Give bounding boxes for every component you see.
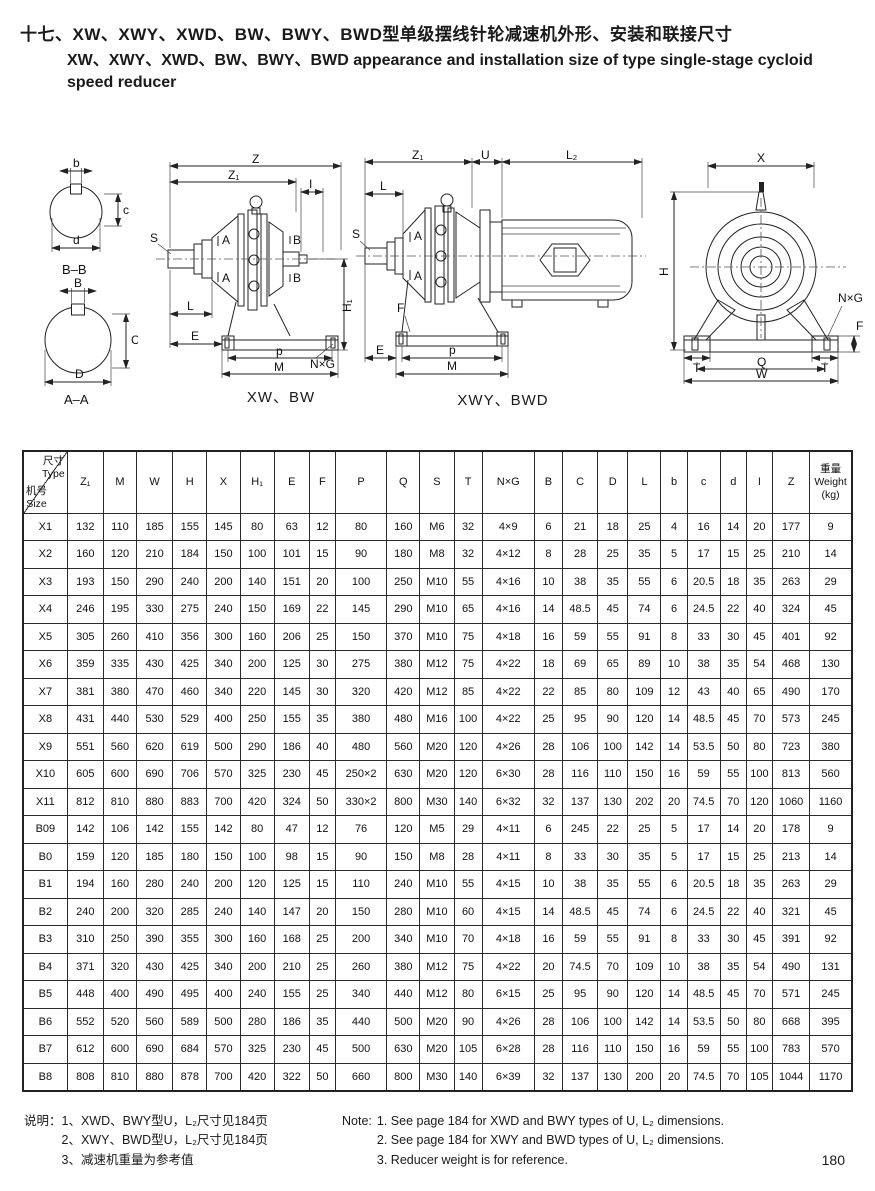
cell: 178 — [772, 816, 809, 844]
cell: 12 — [309, 816, 335, 844]
cell: 6 — [661, 898, 687, 926]
cell: 120 — [454, 733, 482, 761]
cell: 150 — [240, 596, 274, 624]
cell: M10 — [420, 871, 454, 899]
cell: 180 — [387, 541, 420, 569]
cell: 480 — [335, 733, 386, 761]
cell: 195 — [103, 596, 136, 624]
row-size-label: X7 — [23, 678, 67, 706]
table-row: B880881088087870042032250660800M301406×3… — [23, 1063, 852, 1091]
cell: 210 — [772, 541, 809, 569]
row-size-label: B2 — [23, 898, 67, 926]
column-header: H — [173, 451, 207, 513]
cell: 185 — [137, 513, 173, 541]
cell: 4×22 — [482, 678, 534, 706]
cell: 10 — [534, 871, 562, 899]
cell: 878 — [173, 1063, 207, 1091]
cell: 54 — [746, 651, 772, 679]
dim-label: D — [75, 367, 84, 381]
cell: 324 — [772, 596, 809, 624]
cell: 55 — [720, 1036, 746, 1064]
cell: 420 — [387, 678, 420, 706]
cell: 18 — [720, 568, 746, 596]
cell: 275 — [335, 651, 386, 679]
cell: 55 — [454, 871, 482, 899]
table-row: B437132043042534020021025260380M12754×22… — [23, 953, 852, 981]
cell: 240 — [387, 871, 420, 899]
cell: 6×28 — [482, 1036, 534, 1064]
table-header: 尺寸Type 机号Size Z₁MWHXH₁EFPQSTN×GBCDLbcdIZ… — [23, 451, 852, 513]
dim-label: B — [74, 276, 82, 290]
cell: 75 — [454, 651, 482, 679]
cell: 15 — [309, 871, 335, 899]
cell: 45 — [309, 761, 335, 789]
cell: 150 — [628, 761, 661, 789]
cell: 95 — [563, 706, 598, 734]
cell: 20 — [534, 953, 562, 981]
cell: 495 — [173, 981, 207, 1009]
cell: M12 — [420, 981, 454, 1009]
cell: 45 — [598, 898, 628, 926]
cell: 38 — [687, 651, 720, 679]
cell: 80 — [240, 816, 274, 844]
cell: 160 — [387, 513, 420, 541]
cell: 560 — [103, 733, 136, 761]
cell: 20 — [309, 568, 335, 596]
cell: 40 — [746, 596, 772, 624]
cell: 130 — [598, 1063, 628, 1091]
cell: 150 — [335, 623, 386, 651]
cell: 24.5 — [687, 596, 720, 624]
cell: 263 — [772, 871, 809, 899]
cell: 28 — [534, 1008, 562, 1036]
cell: 6 — [661, 568, 687, 596]
dim-label: Z₁ — [228, 168, 239, 182]
table-row: B0914210614215514280471276120M5294×11624… — [23, 816, 852, 844]
cell: M20 — [420, 733, 454, 761]
table-row: X843144053052940025015535380480M161004×2… — [23, 706, 852, 734]
corner-type: 尺寸Type — [42, 455, 65, 480]
cell: 500 — [335, 1036, 386, 1064]
dim-label: Z₁ — [412, 148, 423, 162]
cell: 723 — [772, 733, 809, 761]
cell: 8 — [661, 623, 687, 651]
notes-chinese: 说明： 1、XWD、BWY型U，L₂尺寸见184页 2、XWY、BWD型U，L₂… — [24, 1112, 342, 1170]
cell: 45 — [746, 623, 772, 651]
dim-label: S — [352, 227, 360, 241]
cell: 116 — [563, 1036, 598, 1064]
cell: 43 — [687, 678, 720, 706]
cell: 668 — [772, 1008, 809, 1036]
cell: 240 — [207, 596, 240, 624]
note-line: 1. See page 184 for XWD and BWY types of… — [377, 1112, 724, 1131]
cell: 4×15 — [482, 871, 534, 899]
cell: 25 — [309, 926, 335, 954]
cell: 6×15 — [482, 981, 534, 1009]
cell: 260 — [103, 623, 136, 651]
cell: 140 — [240, 898, 274, 926]
cell: M5 — [420, 816, 454, 844]
dim-label: I — [309, 177, 312, 191]
cell: 1170 — [810, 1063, 852, 1091]
cell: 160 — [67, 541, 103, 569]
cell: 151 — [274, 568, 309, 596]
cell: 25 — [534, 706, 562, 734]
cell: 140 — [454, 1063, 482, 1091]
dim-label: M — [274, 360, 284, 374]
cell: 194 — [67, 871, 103, 899]
cell: 6×30 — [482, 761, 534, 789]
cell: 20 — [309, 898, 335, 926]
cell: 356 — [173, 623, 207, 651]
cell: 400 — [207, 981, 240, 1009]
column-header: W — [137, 451, 173, 513]
cell: 200 — [335, 926, 386, 954]
cell: 250 — [240, 706, 274, 734]
page-title-en: XW、XWY、XWD、BW、BWY、BWD appearance and ins… — [67, 50, 860, 72]
cell: 22 — [720, 898, 746, 926]
row-size-label: B09 — [23, 816, 67, 844]
cell: 45 — [598, 596, 628, 624]
cell: 4×26 — [482, 1008, 534, 1036]
section-mark: A — [222, 233, 230, 247]
cell: 15 — [309, 843, 335, 871]
cell: 320 — [335, 678, 386, 706]
cell: 155 — [173, 513, 207, 541]
cell: 14 — [810, 541, 852, 569]
cell: M10 — [420, 568, 454, 596]
cell: 48.5 — [563, 898, 598, 926]
cell: 4×12 — [482, 541, 534, 569]
cell: 54 — [746, 953, 772, 981]
dim-label: F — [397, 301, 404, 315]
cell: 4×11 — [482, 843, 534, 871]
cell: 25 — [309, 623, 335, 651]
cell: 370 — [387, 623, 420, 651]
cell: 91 — [628, 623, 661, 651]
row-size-label: X10 — [23, 761, 67, 789]
cell: 38 — [563, 568, 598, 596]
cell: 245 — [563, 816, 598, 844]
cell: 25 — [628, 513, 661, 541]
table-body: X113211018515514580631280160M6324×962118… — [23, 513, 852, 1091]
cell: 200 — [207, 871, 240, 899]
cell: 200 — [240, 651, 274, 679]
cell: 17 — [687, 843, 720, 871]
cell: 5 — [661, 541, 687, 569]
cell: 22 — [534, 678, 562, 706]
cell: 22 — [309, 596, 335, 624]
cell: M20 — [420, 1008, 454, 1036]
cell: 132 — [67, 513, 103, 541]
cell: 470 — [137, 678, 173, 706]
cell: 30 — [309, 651, 335, 679]
cell: 109 — [628, 678, 661, 706]
cell: 186 — [274, 733, 309, 761]
cell: 25 — [598, 541, 628, 569]
section-mark: A — [414, 229, 422, 243]
cell: 80 — [746, 733, 772, 761]
cell: 22 — [598, 816, 628, 844]
cell: 16 — [661, 761, 687, 789]
cell: 425 — [173, 651, 207, 679]
cell: 4×22 — [482, 953, 534, 981]
cell: 150 — [628, 1036, 661, 1064]
cell: 600 — [103, 1036, 136, 1064]
cell: 45 — [746, 926, 772, 954]
cell: 800 — [387, 788, 420, 816]
cell: 65 — [454, 596, 482, 624]
cell: 120 — [103, 843, 136, 871]
cell: 70 — [454, 926, 482, 954]
dim-label: Z — [252, 152, 259, 166]
cell: 70 — [598, 953, 628, 981]
cell: 430 — [137, 953, 173, 981]
catalog-page: 十七、XW、XWY、XWD、BW、BWY、BWD型单级摆线针轮减速机外形、安装和… — [0, 0, 875, 1191]
dim-label: d — [73, 233, 80, 247]
cell: M12 — [420, 651, 454, 679]
cell: 106 — [563, 1008, 598, 1036]
cell: M12 — [420, 953, 454, 981]
cell: 131 — [810, 953, 852, 981]
cell: M30 — [420, 788, 454, 816]
cell: 480 — [387, 706, 420, 734]
cell: 155 — [173, 816, 207, 844]
column-header: M — [103, 451, 136, 513]
cell: 230 — [274, 761, 309, 789]
cell: 12 — [661, 678, 687, 706]
cell: 260 — [335, 953, 386, 981]
cell: 125 — [274, 871, 309, 899]
cell: 100 — [598, 733, 628, 761]
cell: 8 — [534, 541, 562, 569]
cell: 137 — [563, 788, 598, 816]
cell: 5 — [661, 843, 687, 871]
column-header: P — [335, 451, 386, 513]
cell: 700 — [207, 1063, 240, 1091]
cell: 18 — [598, 513, 628, 541]
table-row: B119416028024020012012515110240M10554×15… — [23, 871, 852, 899]
cell: 186 — [274, 1008, 309, 1036]
cell: 310 — [67, 926, 103, 954]
row-size-label: B0 — [23, 843, 67, 871]
table-row: B331025039035530016016825200340M10704×18… — [23, 926, 852, 954]
cell: 18 — [720, 871, 746, 899]
cell: 116 — [563, 761, 598, 789]
section-mark: B — [293, 233, 301, 247]
cell: 55 — [628, 568, 661, 596]
column-header: Z₁ — [67, 451, 103, 513]
cell: 59 — [687, 761, 720, 789]
row-size-label: X4 — [23, 596, 67, 624]
cell: 74.5 — [563, 953, 598, 981]
cell: 810 — [103, 788, 136, 816]
cell: 490 — [772, 953, 809, 981]
cell: 468 — [772, 651, 809, 679]
cell: 1044 — [772, 1063, 809, 1091]
cell: 335 — [103, 651, 136, 679]
cell: M16 — [420, 706, 454, 734]
cell: 240 — [240, 981, 274, 1009]
cell: 32 — [534, 788, 562, 816]
cell: 92 — [810, 926, 852, 954]
cell: 50 — [309, 788, 335, 816]
cell: 324 — [274, 788, 309, 816]
cell: 16 — [661, 1036, 687, 1064]
cell: 1060 — [772, 788, 809, 816]
cell: 620 — [137, 733, 173, 761]
cell: 275 — [173, 596, 207, 624]
cell: 92 — [810, 623, 852, 651]
cell: 80 — [746, 1008, 772, 1036]
column-header: I — [746, 451, 772, 513]
cell: M8 — [420, 541, 454, 569]
cell: 5 — [661, 816, 687, 844]
cell: 660 — [335, 1063, 386, 1091]
cell: 4×16 — [482, 596, 534, 624]
cell: 32 — [534, 1063, 562, 1091]
corner-header: 尺寸Type 机号Size — [23, 451, 67, 513]
cell: 35 — [598, 871, 628, 899]
cell: 69 — [563, 651, 598, 679]
dim-label: p — [276, 344, 283, 358]
cell: 14 — [810, 843, 852, 871]
cell: 60 — [454, 898, 482, 926]
cell: 50 — [720, 733, 746, 761]
cell: 50 — [309, 1063, 335, 1091]
column-header: b — [661, 451, 687, 513]
title-block: 十七、XW、XWY、XWD、BW、BWY、BWD型单级摆线针轮减速机外形、安装和… — [20, 24, 860, 93]
cell: 185 — [137, 843, 173, 871]
cell: 28 — [534, 1036, 562, 1064]
cell: 440 — [387, 981, 420, 1009]
cell: 4×9 — [482, 513, 534, 541]
cell: 35 — [309, 1008, 335, 1036]
cell: 22 — [720, 596, 746, 624]
shaft-section-views: b c d B–B B C D A–A — [26, 156, 138, 406]
column-header: Z — [772, 451, 809, 513]
table-row: X319315029024020014015120100250M10554×16… — [23, 568, 852, 596]
column-header: N×G — [482, 451, 534, 513]
cell: 35 — [746, 871, 772, 899]
technical-drawings: b c d B–B B C D A–A — [0, 146, 875, 448]
cell: 33 — [687, 623, 720, 651]
cell: 200 — [628, 1063, 661, 1091]
cell: 74 — [628, 596, 661, 624]
cell: 48.5 — [563, 596, 598, 624]
dim-label: L — [380, 179, 387, 193]
cell: 340 — [387, 926, 420, 954]
cell: 808 — [67, 1063, 103, 1091]
page-title-en2: speed reducer — [67, 72, 860, 94]
cell: 530 — [137, 706, 173, 734]
note-line: 2、XWY、BWD型U，L₂尺寸见184页 — [62, 1131, 268, 1150]
cell: 142 — [628, 1008, 661, 1036]
cell: 14 — [720, 513, 746, 541]
cell: 160 — [240, 623, 274, 651]
cell: 355 — [173, 926, 207, 954]
row-size-label: B8 — [23, 1063, 67, 1091]
dim-label: L — [187, 299, 194, 313]
cell: 125 — [274, 651, 309, 679]
cell: 202 — [628, 788, 661, 816]
column-header: T — [454, 451, 482, 513]
corner-size: 机号Size — [26, 485, 47, 510]
cell: 193 — [67, 568, 103, 596]
cell: 130 — [810, 651, 852, 679]
dim-label: N×G — [838, 291, 863, 305]
cell: M20 — [420, 761, 454, 789]
row-size-label: B3 — [23, 926, 67, 954]
cell: 30 — [598, 843, 628, 871]
cell: 38 — [687, 953, 720, 981]
cell: 213 — [772, 843, 809, 871]
table-row: X1060560069070657032523045250×2630M20120… — [23, 761, 852, 789]
cell: 250 — [103, 926, 136, 954]
column-header: D — [598, 451, 628, 513]
row-size-label: X5 — [23, 623, 67, 651]
cell: 20.5 — [687, 871, 720, 899]
cell: 74 — [628, 898, 661, 926]
cell: 570 — [810, 1036, 852, 1064]
cell: M10 — [420, 596, 454, 624]
caption-xwy-bwd: XWY、BWD — [398, 389, 608, 410]
cell: 380 — [335, 706, 386, 734]
cell: 15 — [720, 843, 746, 871]
cell: 20 — [746, 513, 772, 541]
column-header: X — [207, 451, 240, 513]
cell: 17 — [687, 541, 720, 569]
cell: 380 — [387, 651, 420, 679]
cell: 4×11 — [482, 816, 534, 844]
cell: 55 — [598, 623, 628, 651]
column-header: L — [628, 451, 661, 513]
cell: 570 — [207, 761, 240, 789]
cell: 80 — [598, 678, 628, 706]
notes-en-label: Note: — [342, 1112, 372, 1170]
xw-bw-drawing: Z Z₁ I A A B B — [138, 152, 353, 394]
dim-label: M — [447, 359, 457, 373]
cell: 400 — [207, 706, 240, 734]
cell: 95 — [563, 981, 598, 1009]
row-size-label: B4 — [23, 953, 67, 981]
cell: 210 — [137, 541, 173, 569]
cell: 137 — [563, 1063, 598, 1091]
table-row: X635933543042534020012530275380M12754×22… — [23, 651, 852, 679]
cell: 290 — [387, 596, 420, 624]
cell: 30 — [309, 678, 335, 706]
cell: 65 — [746, 678, 772, 706]
cell: 110 — [598, 761, 628, 789]
cell: 80 — [240, 513, 274, 541]
cell: 490 — [772, 678, 809, 706]
cell: 180 — [173, 843, 207, 871]
table-row: X530526041035630016020625150370M10754×18… — [23, 623, 852, 651]
row-size-label: X3 — [23, 568, 67, 596]
cell: 14 — [720, 816, 746, 844]
cell: 245 — [810, 706, 852, 734]
cell: 28 — [563, 541, 598, 569]
cell: 431 — [67, 706, 103, 734]
cell: 155 — [274, 981, 309, 1009]
cell: 420 — [240, 1063, 274, 1091]
cell: 65 — [598, 651, 628, 679]
cell: 600 — [103, 761, 136, 789]
cell: 168 — [274, 926, 309, 954]
cell: 630 — [387, 1036, 420, 1064]
dim-label: W — [756, 367, 768, 381]
cell: 560 — [387, 733, 420, 761]
